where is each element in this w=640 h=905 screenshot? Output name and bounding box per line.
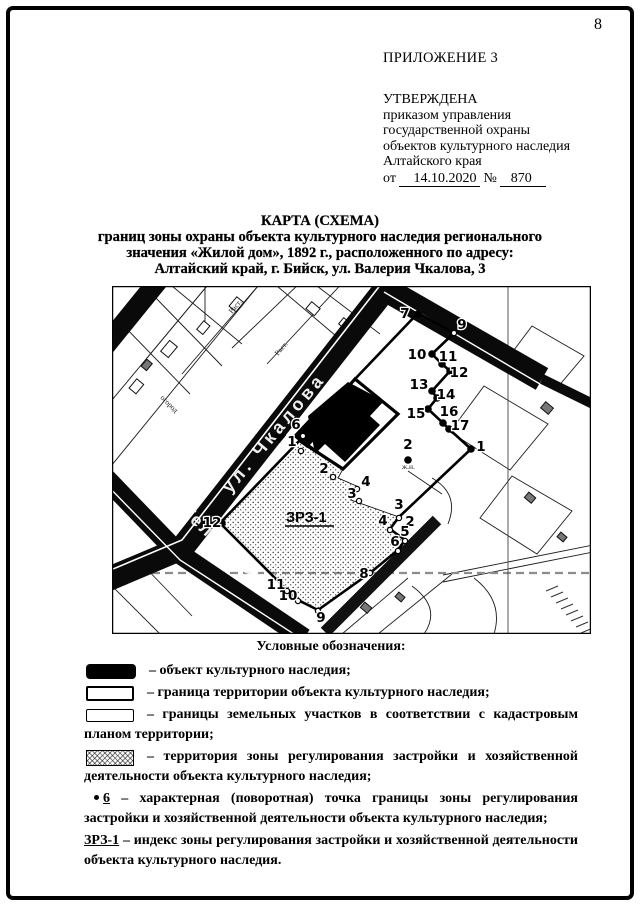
map-point-dot: [467, 445, 475, 453]
page-number: 8: [594, 16, 602, 34]
map-point-label: 11: [267, 577, 286, 593]
map-svg: ул. Чкалова пер. Телеграфный ЗРЗ-1 огоро…: [112, 286, 591, 634]
approval-line: приказом управления: [383, 108, 619, 124]
legend-item-parcel-boundary: – границы земельных участков в соответст…: [84, 705, 578, 745]
map-point-dot: [356, 498, 361, 503]
legend-title: Условные обозначения:: [84, 637, 578, 657]
zone-area-swatch: [86, 750, 134, 766]
legend-item-zone-area: – территория зоны регулирования застройк…: [84, 747, 578, 787]
map-point-label: 5: [400, 524, 409, 540]
map-point-label: 12: [450, 365, 469, 381]
approval-line: УТВЕРЖДЕНА: [383, 92, 619, 108]
order-date: 14.10.2020: [399, 171, 480, 187]
map-point-label: 11: [439, 349, 458, 365]
legend: Условные обозначения: – объект культурно…: [84, 637, 578, 873]
legend-item-turning-point: 6 – характерная (поворотная) точка грани…: [84, 789, 578, 829]
document-title: КАРТА (СХЕМА) границ зоны охраны объекта…: [55, 213, 585, 277]
map-point-label: 6: [390, 534, 399, 550]
map-point-dot: [451, 330, 456, 335]
map-point-label: 8: [359, 566, 368, 582]
zone-index-label: ЗРЗ-1: [286, 510, 327, 526]
title-line-1: КАРТА (СХЕМА): [55, 213, 585, 229]
map-point-label: 3: [347, 486, 356, 502]
map-point-dot: [387, 527, 392, 532]
map-point-label: 17: [451, 418, 470, 434]
parcel-boundary-swatch: [86, 709, 134, 722]
map-point-label: 14: [437, 387, 456, 403]
map-point-label: 2: [403, 437, 412, 453]
map-point-label: 10: [408, 347, 427, 363]
map-point-label: 2: [319, 461, 328, 477]
order-line: от 14.10.2020 № 870: [383, 171, 619, 187]
map-point-dot: [404, 456, 412, 464]
map-point-dot: [428, 350, 436, 358]
map-point-label: 9: [457, 317, 466, 333]
approval-block: УТВЕРЖДЕНА приказом управления государст…: [383, 92, 619, 187]
title-line-4: Алтайский край, г. Бийск, ул. Валерия Чк…: [55, 261, 585, 277]
map-point-label: 15: [407, 406, 426, 422]
map-point-label: 4: [378, 513, 387, 529]
approval-line: государственной охраны: [383, 123, 619, 139]
order-number: 870: [500, 171, 546, 187]
approval-line: Алтайского края: [383, 154, 619, 170]
map-point-dot: [414, 310, 422, 318]
turning-point-dot-icon: [94, 795, 99, 800]
map-point-label: 9: [316, 610, 325, 626]
legend-item-heritage-object: – объект культурного наследия;: [84, 661, 578, 681]
map-point-label: 1: [287, 434, 296, 450]
map-point-label: 13: [410, 377, 429, 393]
map-point-label: 1: [476, 439, 485, 455]
legend-item-zone-index: ЗРЗ-1 – индекс зоны регулирования застро…: [84, 831, 578, 871]
map-point-label: 3: [394, 497, 403, 513]
appendix-label: ПРИЛОЖЕНИЕ 3: [383, 50, 498, 67]
map-point-label: 12: [203, 515, 222, 531]
map-scheme: ул. Чкалова пер. Телеграфный ЗРЗ-1 огоро…: [112, 286, 591, 634]
heritage-object-swatch: [86, 664, 136, 679]
map-point-label: 6: [291, 417, 300, 433]
map-point-dot: [396, 515, 401, 520]
map-point-dot: [298, 448, 303, 453]
legend-item-territory-boundary: – граница территории объекта культурного…: [84, 683, 578, 703]
turning-point-number: 6: [103, 791, 110, 806]
zone-index-text: ЗРЗ-1: [84, 833, 119, 848]
territory-boundary-swatch: [86, 686, 134, 701]
map-point-dot: [300, 433, 305, 438]
map-point-label: 4: [361, 474, 370, 490]
title-line-3: значения «Жилой дом», 1892 г., расположе…: [55, 245, 585, 261]
map-point-dot: [439, 419, 447, 427]
map-point-dot: [428, 387, 436, 395]
map-point-dot: [330, 474, 335, 479]
title-line-2: границ зоны охраны объекта культурного н…: [55, 229, 585, 245]
approval-line: объектов культурного наследия: [383, 139, 619, 155]
map-point-label: 7: [400, 306, 409, 322]
